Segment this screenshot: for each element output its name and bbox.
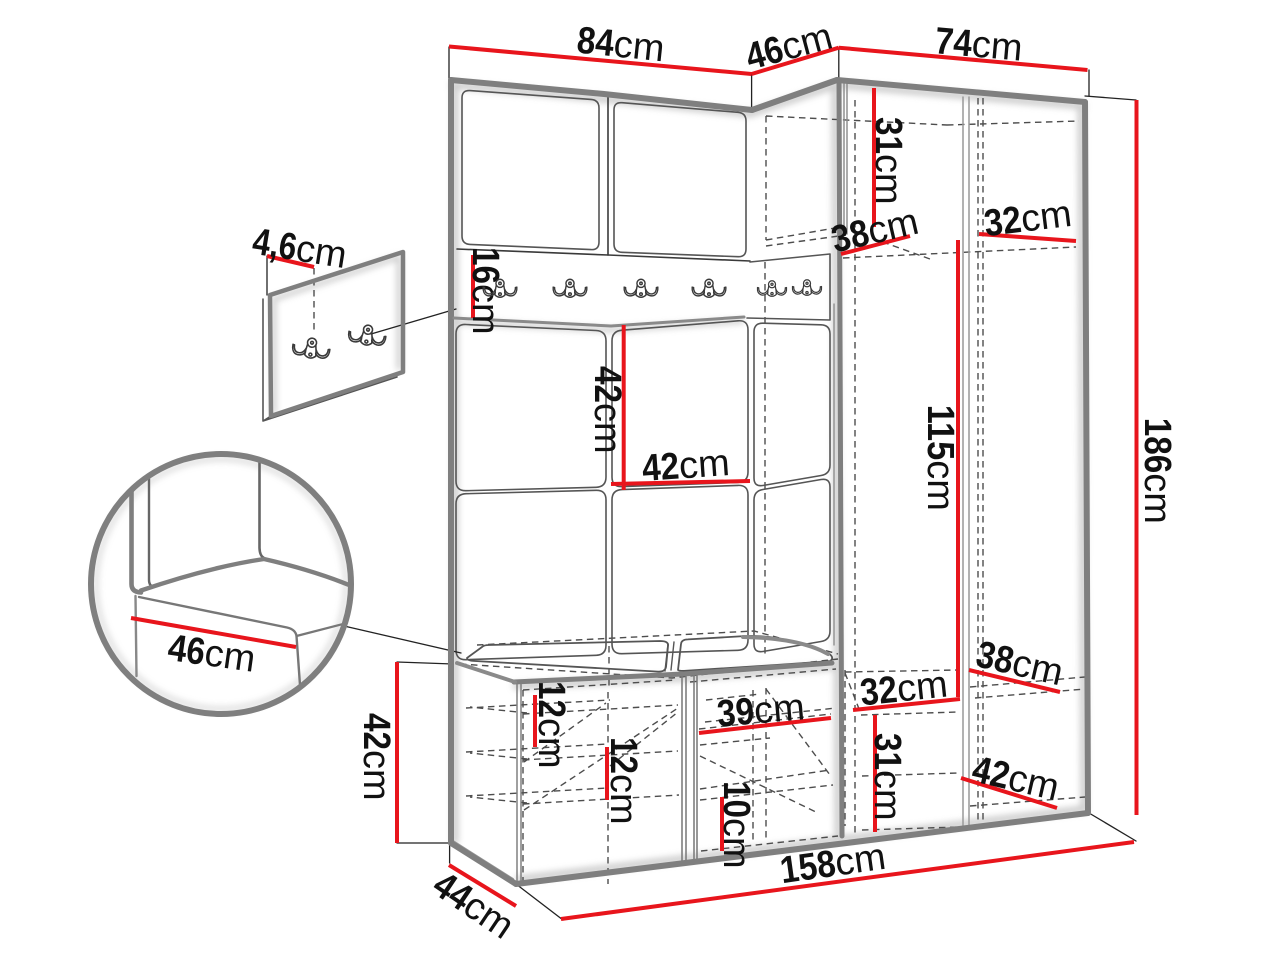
- svg-text:cm: cm: [612, 23, 667, 70]
- svg-text:cm: cm: [530, 718, 572, 769]
- svg-text:74: 74: [933, 20, 974, 65]
- svg-text:cm: cm: [293, 228, 350, 277]
- svg-text:158: 158: [778, 843, 839, 892]
- svg-text:cm: cm: [586, 403, 628, 454]
- svg-text:16: 16: [464, 247, 506, 284]
- svg-text:84: 84: [575, 20, 616, 66]
- svg-text:cm: cm: [867, 154, 909, 205]
- svg-text:cm: cm: [1019, 193, 1074, 241]
- svg-text:10: 10: [715, 781, 757, 818]
- svg-text:12: 12: [602, 737, 644, 774]
- svg-text:cm: cm: [970, 23, 1024, 69]
- svg-text:cm: cm: [602, 774, 644, 825]
- svg-text:39: 39: [715, 691, 756, 736]
- svg-text:cm: cm: [866, 770, 908, 821]
- svg-text:46: 46: [165, 627, 207, 674]
- svg-text:32: 32: [858, 669, 899, 715]
- svg-text:cm: cm: [202, 632, 258, 681]
- svg-text:31: 31: [866, 733, 908, 770]
- svg-text:cm: cm: [832, 836, 888, 885]
- svg-text:42: 42: [355, 713, 397, 750]
- svg-text:42: 42: [586, 366, 628, 403]
- svg-text:cm: cm: [678, 442, 731, 487]
- svg-text:4,6: 4,6: [250, 221, 300, 269]
- svg-text:115: 115: [919, 405, 961, 461]
- svg-text:cm: cm: [752, 686, 806, 732]
- svg-text:42: 42: [641, 446, 681, 490]
- svg-text:cm: cm: [715, 818, 757, 869]
- svg-text:31: 31: [867, 117, 909, 154]
- svg-text:186: 186: [1136, 418, 1178, 474]
- svg-text:32: 32: [982, 199, 1024, 245]
- svg-text:cm: cm: [355, 750, 397, 801]
- svg-text:cm: cm: [895, 664, 950, 711]
- svg-text:12: 12: [530, 681, 572, 718]
- svg-text:cm: cm: [1136, 473, 1178, 524]
- svg-text:cm: cm: [919, 460, 961, 511]
